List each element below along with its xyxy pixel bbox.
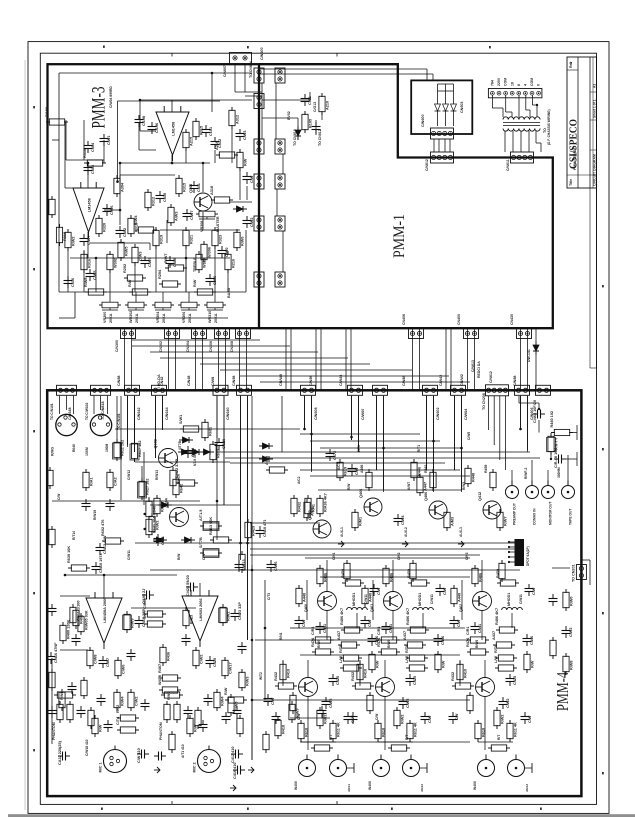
svg-text:CN302: CN302 bbox=[159, 341, 163, 352]
svg-text:C/W48: C/W48 bbox=[339, 375, 343, 386]
svg-text:R611 4K: R611 4K bbox=[414, 722, 418, 737]
svg-text:C/W: C/W bbox=[355, 467, 359, 475]
svg-text:CN430: CN430 bbox=[510, 314, 514, 325]
svg-text:C446: C446 bbox=[441, 636, 445, 645]
svg-text:A440: A440 bbox=[303, 593, 307, 602]
svg-text:C316: C316 bbox=[71, 278, 75, 287]
svg-text:R/MG: R/MG bbox=[51, 447, 55, 456]
svg-text:A/C2: A/C2 bbox=[297, 476, 301, 484]
svg-text:PMM-1: PMM-1 bbox=[391, 214, 408, 258]
svg-text:C/N648: C/N648 bbox=[68, 407, 72, 420]
svg-text:C/410 1973: C/410 1973 bbox=[99, 553, 103, 573]
svg-text:A210: A210 bbox=[326, 101, 330, 110]
svg-text:4: 4 bbox=[524, 84, 528, 86]
svg-text:R410: R410 bbox=[464, 669, 468, 678]
svg-text:C/W6: C/W6 bbox=[274, 562, 278, 572]
svg-text:A466: A466 bbox=[360, 465, 364, 473]
svg-text:C311: C311 bbox=[197, 183, 201, 192]
svg-text:MHOD1: MHOD1 bbox=[418, 593, 422, 606]
svg-text:C/W3: C/W3 bbox=[243, 131, 247, 141]
svg-text:A318: A318 bbox=[210, 186, 214, 195]
svg-text:COM: COM bbox=[530, 78, 534, 86]
svg-text:LM1458: LM1458 bbox=[172, 122, 176, 136]
svg-text:TAPE OUT: TAPE OUT bbox=[569, 509, 573, 525]
svg-text:TO CN610: TO CN610 bbox=[293, 129, 297, 146]
svg-text:C/W9: C/W9 bbox=[148, 258, 152, 268]
svg-text:C/W18 410: C/W18 410 bbox=[85, 739, 89, 756]
svg-text:20KA: 20KA bbox=[188, 313, 192, 323]
svg-text:VR308: VR308 bbox=[200, 221, 204, 232]
svg-text:C/W: C/W bbox=[202, 553, 206, 560]
svg-text:A437: A437 bbox=[492, 631, 496, 640]
svg-text:LM1458: LM1458 bbox=[88, 198, 92, 212]
svg-text:R/W: R/W bbox=[194, 724, 198, 732]
svg-text:C/N88: C/N88 bbox=[117, 376, 121, 386]
svg-text:MIC 1: MIC 1 bbox=[99, 762, 103, 772]
svg-text:VR300: VR300 bbox=[103, 312, 107, 323]
svg-text:C/T4: C/T4 bbox=[116, 716, 120, 725]
svg-text:CN/W8: CN/W8 bbox=[279, 374, 283, 386]
svg-text:R627 182: R627 182 bbox=[146, 479, 150, 495]
svg-text:C/N612: C/N612 bbox=[489, 371, 493, 383]
svg-text:R/T: R/T bbox=[405, 735, 409, 740]
svg-text:C/W2: C/W2 bbox=[200, 655, 204, 665]
svg-text:C/W: C/W bbox=[377, 587, 381, 595]
svg-text:A/M3: A/M3 bbox=[451, 517, 455, 526]
svg-text:R/W19: R/W19 bbox=[93, 510, 97, 520]
svg-text:A3: A3 bbox=[593, 84, 597, 88]
svg-text:C/W7: C/W7 bbox=[190, 211, 194, 221]
svg-text:Q412: Q412 bbox=[478, 492, 482, 501]
svg-text:R432: R432 bbox=[351, 672, 355, 681]
svg-text:C446: C446 bbox=[530, 636, 534, 645]
svg-text:C416 410: C416 410 bbox=[233, 763, 237, 779]
svg-text:R/W6: R/W6 bbox=[317, 640, 321, 648]
svg-text:C/W11: C/W11 bbox=[364, 594, 368, 604]
svg-text:R423: R423 bbox=[190, 615, 194, 624]
svg-text:PHANTOM: PHANTOM bbox=[159, 722, 163, 740]
svg-text:Sheet 1 of 1: Sheet 1 of 1 bbox=[593, 99, 597, 118]
svg-text:C/W: C/W bbox=[443, 587, 447, 595]
svg-text:CN/W2: CN/W2 bbox=[460, 374, 464, 386]
svg-text:R/T: R/T bbox=[497, 735, 501, 740]
svg-text:R/T8: R/T8 bbox=[339, 645, 343, 653]
svg-text:MHOD1: MHOD1 bbox=[352, 593, 356, 606]
svg-text:R/W: R/W bbox=[193, 279, 197, 287]
svg-text:PMM-4: PMM-4 bbox=[553, 672, 572, 711]
svg-text:R/W4: R/W4 bbox=[221, 696, 225, 706]
svg-text:C/W11: C/W11 bbox=[127, 550, 131, 560]
svg-text:C/R-48 10K: C/R-48 10K bbox=[554, 448, 558, 468]
svg-text:R641 104: R641 104 bbox=[153, 516, 157, 533]
svg-text:W/306: W/306 bbox=[208, 247, 212, 258]
svg-text:C/N48: C/N48 bbox=[187, 376, 191, 386]
svg-text:AUX-2: AUX-2 bbox=[404, 527, 408, 537]
svg-text:IN400: IN400 bbox=[368, 781, 372, 790]
svg-text:R/W2: R/W2 bbox=[72, 237, 76, 247]
svg-text:C672: C672 bbox=[333, 451, 337, 460]
svg-text:W302: W302 bbox=[114, 258, 118, 268]
svg-text:MHOD1: MHOD1 bbox=[507, 593, 511, 606]
svg-text:C/A2: C/A2 bbox=[114, 477, 118, 486]
svg-text:784: 784 bbox=[491, 80, 495, 86]
svg-text:TO CN612: TO CN612 bbox=[318, 129, 322, 146]
svg-text:COMAX IN: COMAX IN bbox=[533, 508, 537, 525]
svg-text:R/W2: R/W2 bbox=[401, 715, 405, 725]
svg-text:C/W4: C/W4 bbox=[401, 515, 405, 525]
svg-text:PMM-3: PMM-3 bbox=[89, 87, 110, 129]
svg-text:A447: A447 bbox=[424, 482, 428, 491]
svg-text:C/W0: C/W0 bbox=[225, 248, 229, 258]
svg-text:R406 4K7: R406 4K7 bbox=[406, 608, 410, 625]
svg-text:R601: R601 bbox=[209, 427, 213, 436]
svg-text:R459: R459 bbox=[484, 465, 488, 473]
svg-text:C/W8: C/W8 bbox=[94, 655, 98, 665]
svg-text:R216: R216 bbox=[232, 259, 236, 268]
svg-text:Q402: Q402 bbox=[459, 604, 463, 612]
svg-text:(D.F. CHASSIS WIRING): (D.F. CHASSIS WIRING) bbox=[547, 109, 551, 145]
svg-text:300HM: 300HM bbox=[557, 467, 561, 478]
svg-text:20KA: 20KA bbox=[162, 313, 166, 323]
svg-text:C/W7: C/W7 bbox=[87, 236, 91, 246]
svg-text:CN406: CN406 bbox=[402, 314, 406, 325]
svg-text:AUX1: AUX1 bbox=[347, 784, 351, 792]
svg-text:R/T14: R/T14 bbox=[72, 531, 76, 540]
svg-text:R/100: R/100 bbox=[45, 107, 49, 117]
svg-text:C/W5: C/W5 bbox=[93, 271, 97, 281]
svg-text:PMM SERIES: PMM SERIES bbox=[573, 147, 577, 170]
svg-text:C/W11: C/W11 bbox=[519, 594, 523, 604]
svg-text:S/T7B: S/T7B bbox=[199, 537, 203, 548]
svg-text:R/M1: R/M1 bbox=[359, 517, 363, 526]
svg-text:P/W6: P/W6 bbox=[167, 692, 171, 700]
svg-text:R/W4: R/W4 bbox=[134, 215, 138, 225]
svg-text:R/W9: R/W9 bbox=[296, 709, 300, 719]
svg-text:C/N88: C/N88 bbox=[402, 376, 406, 386]
svg-text:BV02: BV02 bbox=[287, 111, 291, 120]
svg-text:DW-141: DW-141 bbox=[527, 349, 531, 362]
svg-text:100M: 100M bbox=[105, 443, 109, 452]
svg-text:C611: C611 bbox=[161, 536, 165, 545]
svg-text:C/N1: C/N1 bbox=[332, 552, 336, 560]
svg-text:4/T7B: 4/T7B bbox=[178, 440, 182, 450]
svg-text:R/W2: R/W2 bbox=[324, 715, 328, 725]
svg-text:C/W12: C/W12 bbox=[127, 470, 131, 480]
svg-text:R630 10K: R630 10K bbox=[67, 546, 71, 563]
svg-text:R/W8: R/W8 bbox=[570, 661, 574, 671]
svg-text:R/W: R/W bbox=[244, 158, 248, 166]
svg-text:R/W3: R/W3 bbox=[246, 677, 250, 687]
svg-text:R/W2: R/W2 bbox=[501, 715, 505, 725]
svg-text:C/196: C/196 bbox=[155, 123, 159, 133]
svg-text:220V: 220V bbox=[497, 77, 501, 86]
svg-text:R/A1: R/A1 bbox=[90, 477, 94, 486]
svg-text:R611 4K: R611 4K bbox=[337, 722, 341, 737]
svg-text:TO CN208: TO CN208 bbox=[482, 393, 486, 410]
svg-text:C/N602: C/N602 bbox=[436, 407, 440, 420]
svg-text:A/C3: A/C3 bbox=[337, 462, 341, 470]
svg-text:R432: R432 bbox=[274, 672, 278, 681]
svg-text:C441: C441 bbox=[389, 624, 393, 633]
svg-text:R310: R310 bbox=[83, 149, 87, 158]
svg-text:20KA: 20KA bbox=[214, 313, 218, 323]
svg-text:R446: R446 bbox=[418, 467, 422, 476]
svg-text:TO C/N101: TO C/N101 bbox=[117, 413, 121, 430]
svg-text:C/N300: C/N300 bbox=[115, 340, 119, 352]
svg-text:R/W13: R/W13 bbox=[155, 470, 159, 480]
svg-text:PHANTOM: PHANTOM bbox=[52, 722, 56, 740]
svg-text:TREBLE: TREBLE bbox=[193, 257, 197, 272]
svg-text:CN400: CN400 bbox=[457, 314, 461, 325]
svg-text:R/W: R/W bbox=[531, 660, 535, 668]
svg-text:Q400: Q400 bbox=[304, 604, 308, 612]
svg-text:A440: A440 bbox=[369, 593, 373, 602]
svg-text:R/W: R/W bbox=[99, 724, 103, 732]
svg-text:C/G13: C/G13 bbox=[313, 102, 317, 112]
svg-text:R/W: R/W bbox=[224, 687, 228, 695]
svg-text:C/W: C/W bbox=[375, 713, 379, 720]
svg-text:R602: R602 bbox=[217, 449, 221, 458]
svg-text:C/W 410: C/W 410 bbox=[137, 748, 141, 763]
svg-text:R/W: R/W bbox=[128, 279, 132, 287]
svg-text:P/W6: P/W6 bbox=[60, 692, 64, 700]
svg-text:TO C/N818: TO C/N818 bbox=[101, 401, 105, 420]
svg-text:A/T1.9: A/T1.9 bbox=[199, 510, 203, 521]
svg-text:C/W5: C/W5 bbox=[467, 432, 471, 440]
svg-text:2: 2 bbox=[569, 62, 573, 64]
svg-text:2W6: 2W6 bbox=[357, 445, 361, 452]
svg-text:R406 4K7: R406 4K7 bbox=[340, 608, 344, 625]
svg-text:TO C/N101: TO C/N101 bbox=[50, 403, 54, 420]
svg-text:LM/458A 2066: LM/458A 2066 bbox=[103, 598, 107, 623]
svg-text:C/W3: C/W3 bbox=[139, 252, 143, 262]
svg-text:C/W: C/W bbox=[457, 619, 461, 627]
svg-text:C/W6: C/W6 bbox=[122, 665, 126, 675]
svg-text:IN400: IN400 bbox=[294, 781, 298, 790]
svg-text:R312: R312 bbox=[152, 197, 156, 206]
svg-text:Q401: Q401 bbox=[370, 604, 374, 612]
svg-text:C/416 47NF: C/416 47NF bbox=[54, 642, 58, 663]
svg-text:CN306: CN306 bbox=[209, 341, 213, 352]
svg-text:R474: R474 bbox=[311, 637, 315, 647]
svg-text:R202: R202 bbox=[123, 264, 127, 273]
svg-text:C/N3: C/N3 bbox=[465, 552, 469, 560]
svg-text:C425: C425 bbox=[413, 676, 417, 685]
svg-text:1KPF: 1KPF bbox=[143, 609, 147, 619]
svg-text:R/W4: R/W4 bbox=[121, 696, 125, 706]
svg-text:R/A36 4K7: R/A36 4K7 bbox=[324, 493, 328, 512]
svg-text:R436: R436 bbox=[167, 652, 171, 661]
svg-text:R611 4K: R611 4K bbox=[514, 722, 518, 737]
svg-text:C/N60: C/N60 bbox=[143, 598, 147, 609]
svg-text:C425: C425 bbox=[336, 676, 340, 685]
svg-text:C/W60: C/W60 bbox=[361, 409, 365, 420]
svg-text:C/N600: C/N600 bbox=[421, 114, 425, 127]
svg-text:CN304: CN304 bbox=[186, 341, 190, 352]
svg-text:L/W: L/W bbox=[405, 656, 409, 663]
svg-text:R/W0: R/W0 bbox=[570, 597, 574, 607]
svg-text:R/W8: R/W8 bbox=[84, 278, 88, 288]
svg-text:R448: R448 bbox=[472, 473, 476, 482]
svg-text:C/W2: C/W2 bbox=[135, 697, 139, 707]
svg-text:WR302: WR302 bbox=[129, 311, 133, 323]
svg-text:16: 16 bbox=[510, 82, 514, 86]
svg-text:VR304: VR304 bbox=[156, 311, 160, 323]
svg-text:R315: R315 bbox=[200, 126, 204, 135]
svg-text:C441: C441 bbox=[478, 624, 482, 633]
svg-text:C/N608: C/N608 bbox=[314, 407, 318, 420]
svg-text:R/N1: R/N1 bbox=[279, 632, 283, 640]
svg-text:R/W7: R/W7 bbox=[504, 517, 508, 527]
svg-text:C/W64: C/W64 bbox=[464, 408, 468, 420]
svg-text:MONITOR OUT: MONITOR OUT bbox=[549, 502, 553, 525]
svg-text:AUX2: AUX2 bbox=[420, 784, 424, 792]
svg-text:R/W: R/W bbox=[442, 660, 446, 668]
svg-text:C446: C446 bbox=[375, 636, 379, 645]
svg-text:R407: R407 bbox=[158, 664, 162, 673]
svg-text:C/N607: C/N607 bbox=[223, 65, 227, 77]
svg-text:W/T2: W/T2 bbox=[259, 672, 263, 680]
svg-text:BASS: BASS bbox=[227, 287, 231, 298]
svg-text:C/W42: C/W42 bbox=[439, 375, 443, 386]
svg-text:TO CN614: TO CN614 bbox=[249, 61, 253, 78]
svg-text:AUX-3: AUX-3 bbox=[459, 527, 463, 537]
svg-text:R401: R401 bbox=[80, 615, 84, 624]
svg-text:A/T1 410: A/T1 410 bbox=[181, 744, 185, 758]
svg-text:R418: R418 bbox=[282, 725, 286, 734]
svg-text:REDCI DA: REDCI DA bbox=[477, 361, 481, 378]
svg-text:C425: C425 bbox=[513, 676, 517, 685]
svg-text:R/432: R/432 bbox=[298, 502, 302, 512]
svg-text:A215: A215 bbox=[190, 137, 194, 146]
svg-text:A437: A437 bbox=[403, 631, 407, 640]
svg-text:C/N644: C/N644 bbox=[165, 407, 169, 420]
svg-text:C407: C407 bbox=[106, 658, 110, 667]
svg-text:C/423 33P: C/423 33P bbox=[238, 602, 242, 620]
svg-text:CA32 220(25): CA32 220(25) bbox=[58, 740, 62, 765]
svg-text:CN308: CN308 bbox=[230, 341, 234, 352]
svg-text:R/W6: R/W6 bbox=[387, 640, 391, 648]
svg-text:R/T8: R/T8 bbox=[405, 645, 409, 653]
svg-text:L/W: L/W bbox=[339, 656, 343, 663]
svg-text:C/W: C/W bbox=[57, 493, 61, 500]
svg-text:C/W17: C/W17 bbox=[229, 662, 233, 674]
svg-text:R440 102: R440 102 bbox=[550, 411, 554, 427]
svg-text:COM: COM bbox=[504, 78, 508, 86]
svg-text:C101: C101 bbox=[209, 127, 213, 136]
svg-text:C/N612: C/N612 bbox=[425, 159, 429, 171]
svg-text:R/W: R/W bbox=[376, 660, 380, 668]
svg-text:C/W11: C/W11 bbox=[430, 594, 434, 604]
svg-text:C308: C308 bbox=[173, 258, 177, 267]
svg-text:R316: R316 bbox=[88, 259, 92, 268]
svg-text:C/W2: C/W2 bbox=[506, 699, 510, 709]
svg-text:C/T3: C/T3 bbox=[267, 593, 271, 600]
svg-text:R321: R321 bbox=[190, 235, 194, 244]
svg-text:C/N640: C/N640 bbox=[226, 407, 230, 420]
svg-text:C/422 3.3D: C/422 3.3D bbox=[175, 459, 179, 478]
svg-text:R/W7: R/W7 bbox=[164, 254, 168, 264]
svg-text:C/W8: C/W8 bbox=[211, 377, 215, 386]
svg-text:C/W: C/W bbox=[532, 587, 536, 595]
svg-text:A/C8: A/C8 bbox=[311, 507, 315, 516]
svg-text:C/W: C/W bbox=[250, 175, 254, 183]
svg-text:PREAMP OUT: PREAMP OUT bbox=[513, 503, 517, 525]
svg-text:C/W1: C/W1 bbox=[107, 136, 111, 146]
svg-text:C/N600: C/N600 bbox=[260, 47, 264, 60]
svg-text:IN400: IN400 bbox=[473, 781, 477, 790]
svg-text:MASTER: MASTER bbox=[216, 216, 220, 232]
svg-text:R/W05 93K: R/W05 93K bbox=[85, 610, 89, 630]
svg-text:C/W6: C/W6 bbox=[110, 206, 114, 216]
svg-text:AUX3: AUX3 bbox=[525, 784, 529, 792]
svg-text:A216: A216 bbox=[215, 141, 219, 150]
svg-text:R/T8: R/T8 bbox=[494, 645, 498, 653]
svg-text:R617 182: R617 182 bbox=[138, 441, 142, 457]
svg-text:TO CN201: TO CN201 bbox=[571, 564, 575, 582]
svg-text:DPDT 6A(2P): DPDT 6A(2P) bbox=[526, 546, 530, 566]
svg-text:A/W7: A/W7 bbox=[407, 482, 411, 490]
svg-text:C/N88: C/N88 bbox=[513, 376, 517, 386]
svg-text:R/W6: R/W6 bbox=[475, 640, 479, 648]
svg-text:R642: R642 bbox=[180, 484, 184, 493]
svg-text:R462: R462 bbox=[424, 465, 428, 473]
svg-text:R204: R204 bbox=[158, 269, 162, 279]
svg-text:C/R1: C/R1 bbox=[466, 626, 470, 635]
svg-text:C/N98: C/N98 bbox=[309, 376, 313, 386]
svg-text:C/198: C/198 bbox=[142, 116, 146, 126]
svg-text:R323: R323 bbox=[219, 235, 223, 244]
svg-text:C/W: C/W bbox=[368, 619, 372, 627]
svg-text:C420: C420 bbox=[213, 658, 217, 667]
svg-text:C/N606: C/N606 bbox=[530, 407, 534, 420]
svg-text:C/N98: C/N98 bbox=[232, 376, 236, 386]
svg-text:WR310: WR310 bbox=[208, 311, 212, 323]
svg-text:R640: R640 bbox=[153, 506, 157, 515]
svg-text:C412 410: C412 410 bbox=[231, 747, 235, 763]
svg-text:R I HD-DA: R I HD-DA bbox=[157, 374, 161, 392]
svg-text:R410: R410 bbox=[364, 669, 368, 678]
svg-text:R/413 66K: R/413 66K bbox=[209, 517, 213, 535]
svg-text:R319: R319 bbox=[160, 235, 164, 244]
svg-text:C/W: C/W bbox=[302, 619, 306, 627]
svg-text:C441: C441 bbox=[323, 624, 327, 633]
svg-text:Q406: Q406 bbox=[424, 492, 428, 501]
svg-text:C/W5: C/W5 bbox=[235, 702, 239, 712]
svg-text:100M: 100M bbox=[85, 447, 89, 456]
svg-text:A304: A304 bbox=[121, 182, 125, 192]
svg-text:C/W2: C/W2 bbox=[569, 628, 573, 638]
svg-text:R432: R432 bbox=[451, 672, 455, 681]
svg-text:R/W5: R/W5 bbox=[125, 247, 129, 257]
svg-text:L/W: L/W bbox=[494, 656, 498, 663]
svg-text:A/W3: A/W3 bbox=[175, 212, 179, 222]
svg-text:C302: C302 bbox=[123, 228, 127, 237]
svg-text:C/W: C/W bbox=[271, 697, 275, 705]
svg-text:R406 4K7: R406 4K7 bbox=[495, 608, 499, 625]
svg-text:S/W1: S/W1 bbox=[179, 415, 183, 424]
svg-text:C/N642: C/N642 bbox=[137, 407, 141, 420]
svg-text:8: 8 bbox=[517, 84, 521, 86]
svg-text:CN603: CN603 bbox=[460, 102, 464, 113]
svg-text:CIRCUIT DIAGRAM: CIRCUIT DIAGRAM bbox=[593, 154, 597, 186]
svg-text:C/W04 899RD: C/W04 899RD bbox=[109, 86, 113, 108]
svg-text:Title: Title bbox=[569, 179, 573, 186]
svg-text:VR306: VR306 bbox=[182, 312, 186, 323]
svg-text:A312: A312 bbox=[236, 115, 240, 124]
svg-text:R619: R619 bbox=[344, 467, 348, 476]
svg-text:C/N613: C/N613 bbox=[471, 360, 475, 372]
